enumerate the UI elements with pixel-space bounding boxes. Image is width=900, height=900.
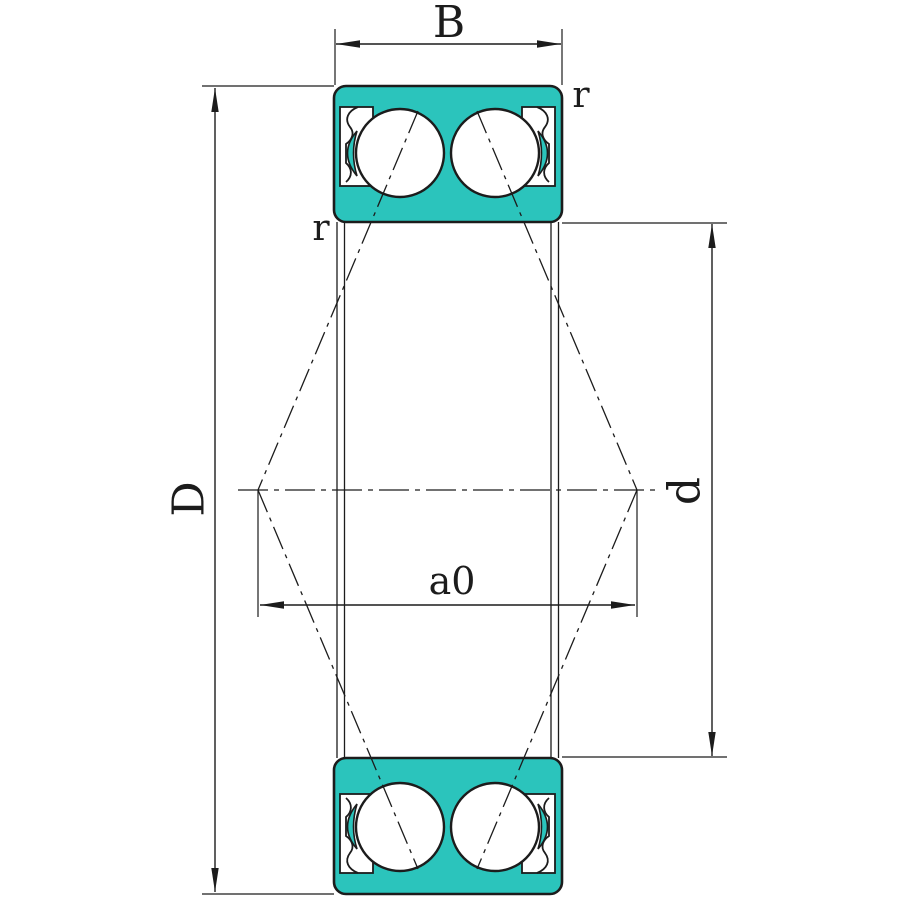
bottom-bearing-section [334,758,562,894]
width-label-B: B [433,0,465,48]
inner-chamfer-label-r: r [312,208,330,249]
load-center-distance-label-a0: a0 [429,559,476,603]
bore-diameter-label-d: d [660,477,711,505]
bearing-cross-section-drawing: B r r D d a0 [0,0,900,900]
outer-chamfer-label-r: r [572,75,590,116]
bearing-drawing-canvas: B r r D d a0 [0,0,900,900]
center-and-contact-lines [238,111,655,869]
outer-diameter-label-D: D [164,481,215,516]
top-bearing-section [334,86,562,222]
